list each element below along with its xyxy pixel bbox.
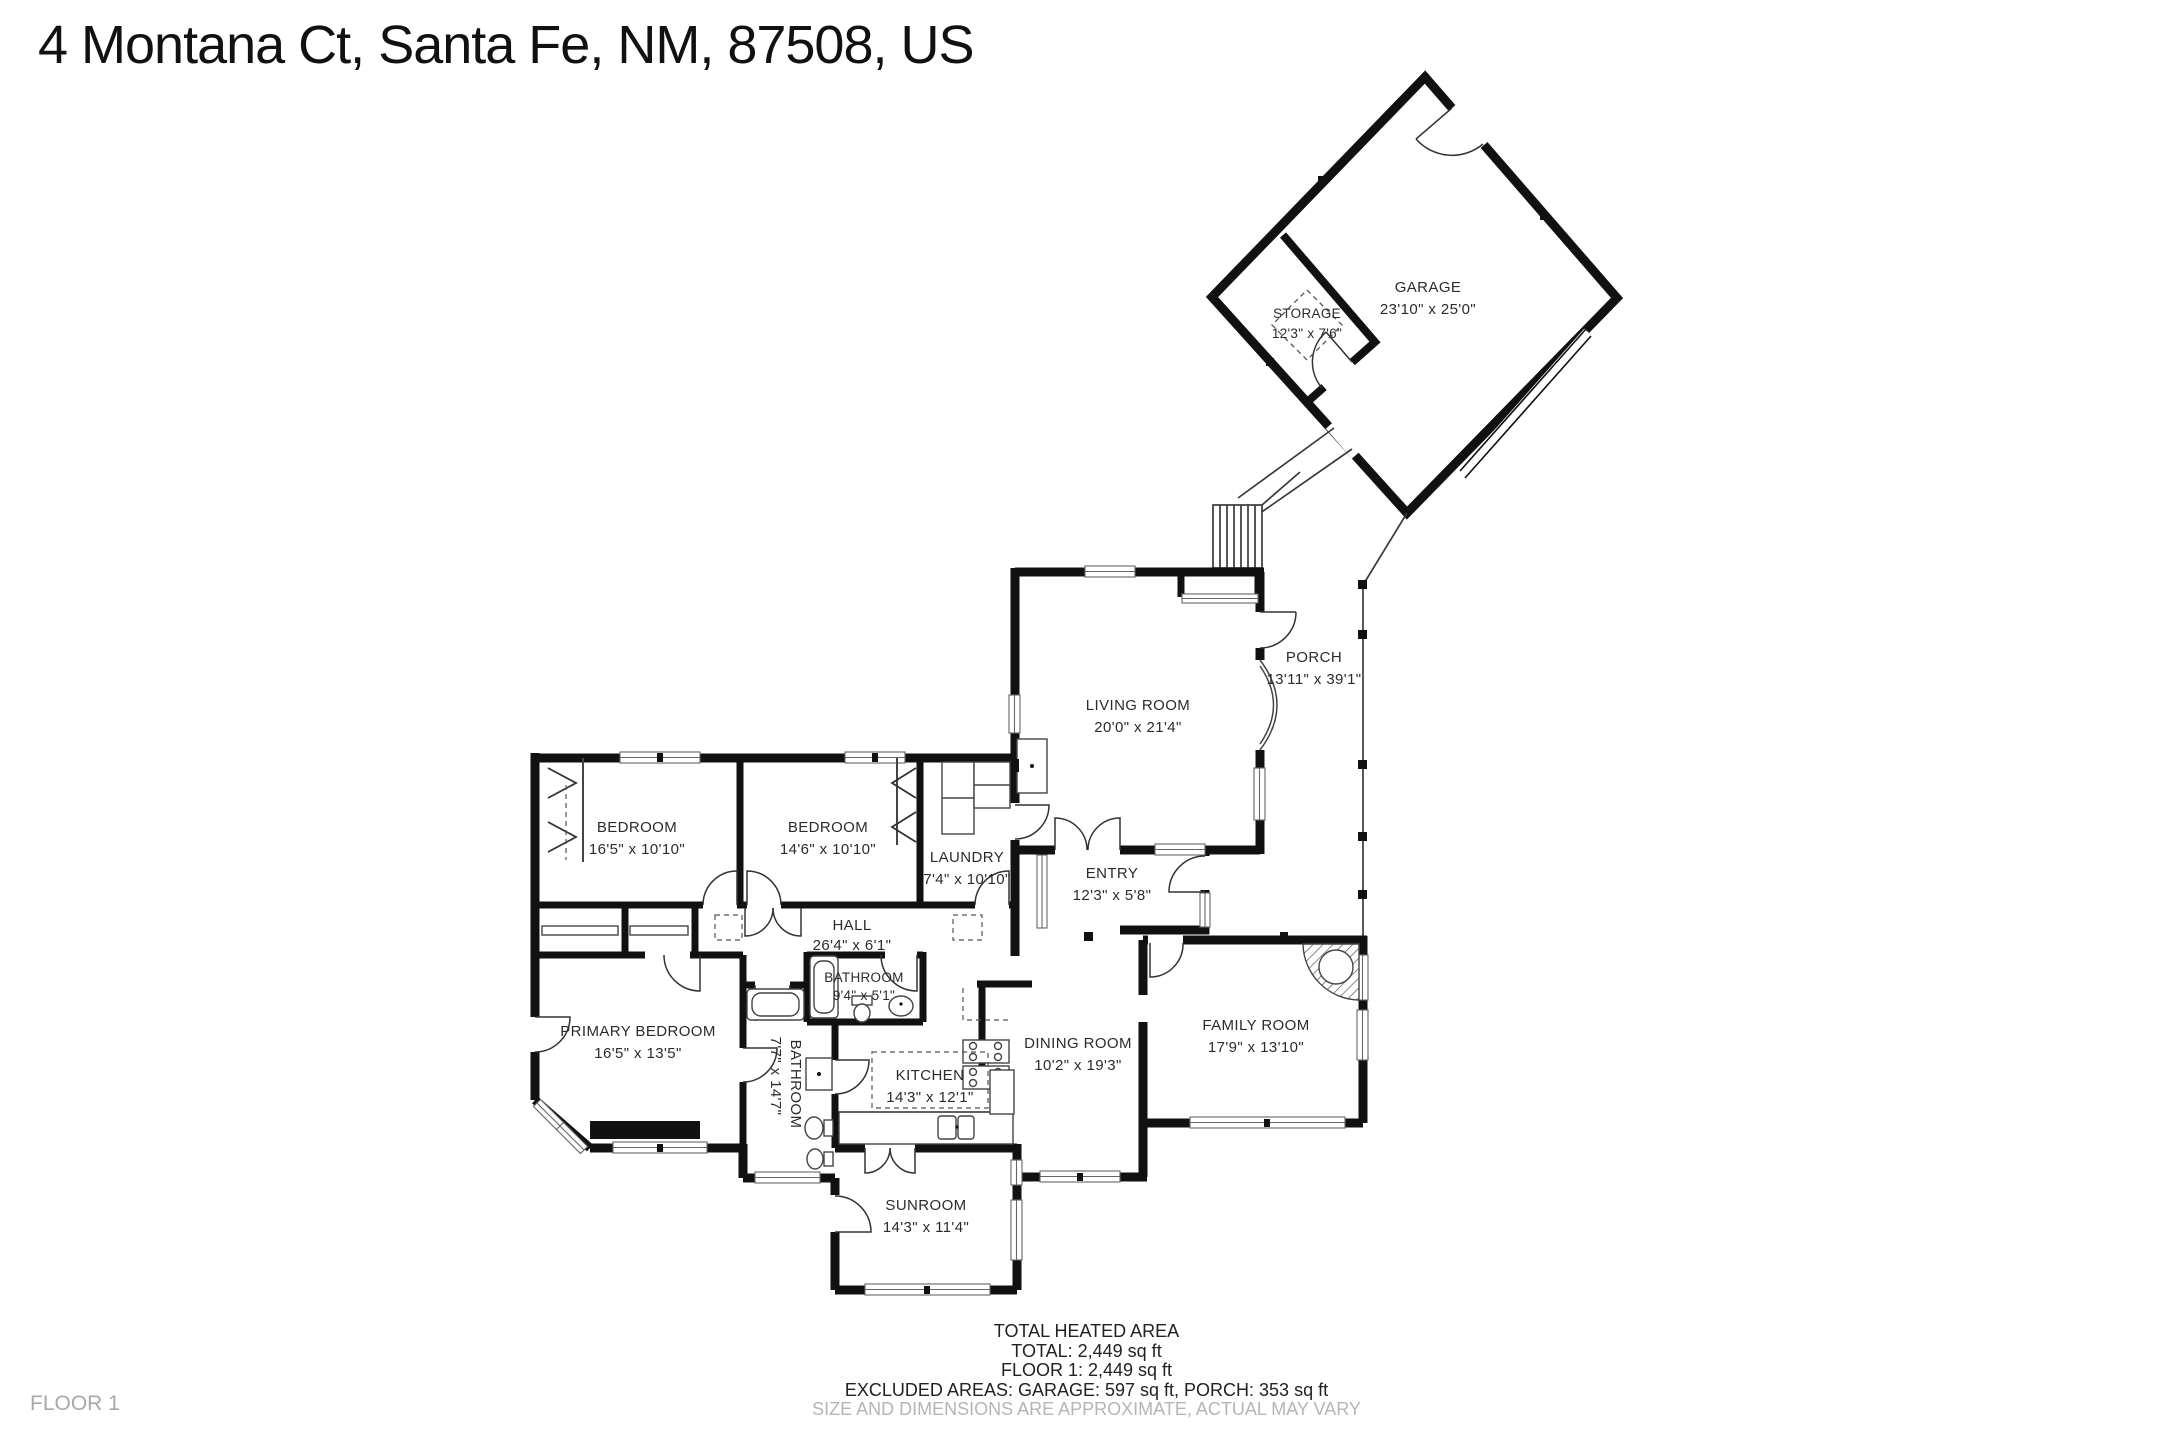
bedroom-right-dims: 14'6" x 10'10" [780,841,876,858]
closet-chevrons-left [548,768,576,852]
kitchen-sink [938,1116,974,1139]
window [1011,1160,1022,1185]
area-summary: TOTAL HEATED AREA TOTAL: 2,449 sq ft FLO… [0,1322,2173,1420]
bedroom-right-label: BEDROOM [788,819,868,836]
porch-label: PORCH [1286,649,1342,666]
bathroom-large-dims: 7'7" x 14'7" [767,1037,784,1116]
garage-window-tick [1266,358,1274,366]
kitchen-label: KITCHEN [896,1067,965,1084]
bedroom-left-label: BEDROOM [597,819,677,836]
living-french-door-right [1088,818,1120,850]
family-room-label: FAMILY ROOM [1202,1017,1309,1034]
hall-dims: 26'4" x 6'1" [813,937,892,954]
garage-label: GARAGE [1395,279,1462,296]
entry-dims: 12'3" x 5'8" [1073,887,1152,904]
kitchen-counter [839,1112,1013,1144]
primary-bedroom-label: PRIMARY BEDROOM [560,1023,715,1040]
laundry-dims: 7'4" x 10'10" [923,871,1010,888]
bathroom-large-label: BATHROOM [787,1040,804,1129]
hall-double-door-left [745,908,773,936]
bathtub-small [810,956,838,1018]
closet-doors-hall [542,926,688,935]
porch-edge-diagonal [1363,513,1407,585]
sunroom-side-door-arc [835,1196,871,1232]
primary-hall-door-arc [664,955,700,991]
entry-label: ENTRY [1086,865,1139,882]
entry-door-arc [1169,856,1205,892]
sink-large [806,1058,832,1090]
window [1182,594,1258,603]
sunroom-label: SUNROOM [885,1197,966,1214]
living-porch-door-arc [1260,612,1296,648]
living-room-label: LIVING ROOM [1086,697,1190,714]
kitchen-peninsula [990,1070,1014,1114]
walkway-rail [1256,449,1352,516]
storage-dims: 12'3" x 7'6" [1272,326,1342,341]
toilet-large [805,1117,833,1139]
summary-excluded: EXCLUDED AREAS: GARAGE: 597 sq ft, PORCH… [0,1381,2173,1401]
fireplace-family [1303,944,1359,1000]
bathroom-small-dims: 9'4" x 5'1" [833,988,895,1003]
bedroom-left-door-arc [703,871,737,905]
primary-builtin [590,1121,700,1139]
floor-indicator: FLOOR 1 [30,1392,120,1416]
floorplan-drawing: STORAGE 12'3" x 7'6" GARAGE 23'10" x 25'… [0,0,2173,1448]
hall-double-door-right [773,908,801,936]
window [1009,695,1020,733]
storage-label: STORAGE [1273,306,1341,321]
window [755,1172,820,1183]
sunroom-french-door-left [865,1148,890,1173]
summary-heading: TOTAL HEATED AREA [0,1322,2173,1342]
family-room-dims: 17'9" x 13'10" [1208,1039,1304,1056]
garage-block: STORAGE 12'3" x 7'6" GARAGE 23'10" x 25'… [1212,77,1617,513]
window [1155,844,1205,855]
closet-chevrons-right [892,768,916,842]
garage-dims: 23'10" x 25'0" [1380,301,1476,318]
living-room-dims: 20'0" x 21'4" [1094,719,1181,736]
fireplace-living [1011,739,1047,793]
bathtub-large [747,989,804,1020]
floorplan-page: 4 Montana Ct, Santa Fe, NM, 87508, US [0,0,2173,1448]
window [1200,893,1210,927]
bedroom-right-door-arc [747,871,781,905]
laundry-wardrobe [942,762,1010,834]
sunroom-dims: 14'3" x 11'4" [883,1219,969,1236]
kitchen-dims: 14'3" x 12'1" [886,1089,973,1106]
sunroom-french-door-right [890,1148,915,1173]
summary-floor1: FLOOR 1: 2,449 sq ft [0,1361,2173,1381]
garage-window-tick [1540,212,1548,220]
window [1011,1200,1022,1260]
bathroom-kitchen-door-arc [835,1060,869,1094]
dining-room-label: DINING ROOM [1024,1035,1132,1052]
bathroom-small-label: BATHROOM [824,970,903,985]
laundry-label: LAUNDRY [930,849,1004,866]
window [1085,566,1135,577]
porch-dims: 13'11" x 39'1" [1266,671,1361,688]
summary-total: TOTAL: 2,449 sq ft [0,1342,2173,1362]
living-left-door-arc [1015,805,1049,839]
walkway-rail [1238,428,1334,498]
window [1254,768,1265,820]
primary-bedroom-dims: 16'5" x 13'5" [594,1045,681,1062]
window [1357,1010,1368,1060]
summary-disclaimer: SIZE AND DIMENSIONS ARE APPROXIMATE, ACT… [0,1400,2173,1420]
garage-window-tick [1318,176,1326,184]
window [1037,855,1047,928]
bedroom-left-dims: 16'5" x 10'10" [589,841,685,858]
hall-label: HALL [832,917,871,934]
living-french-door-left [1055,818,1087,850]
bidet-large [807,1149,833,1169]
dining-room-dims: 10'2" x 19'3" [1034,1057,1121,1074]
family-room-door-arc [1150,943,1183,977]
